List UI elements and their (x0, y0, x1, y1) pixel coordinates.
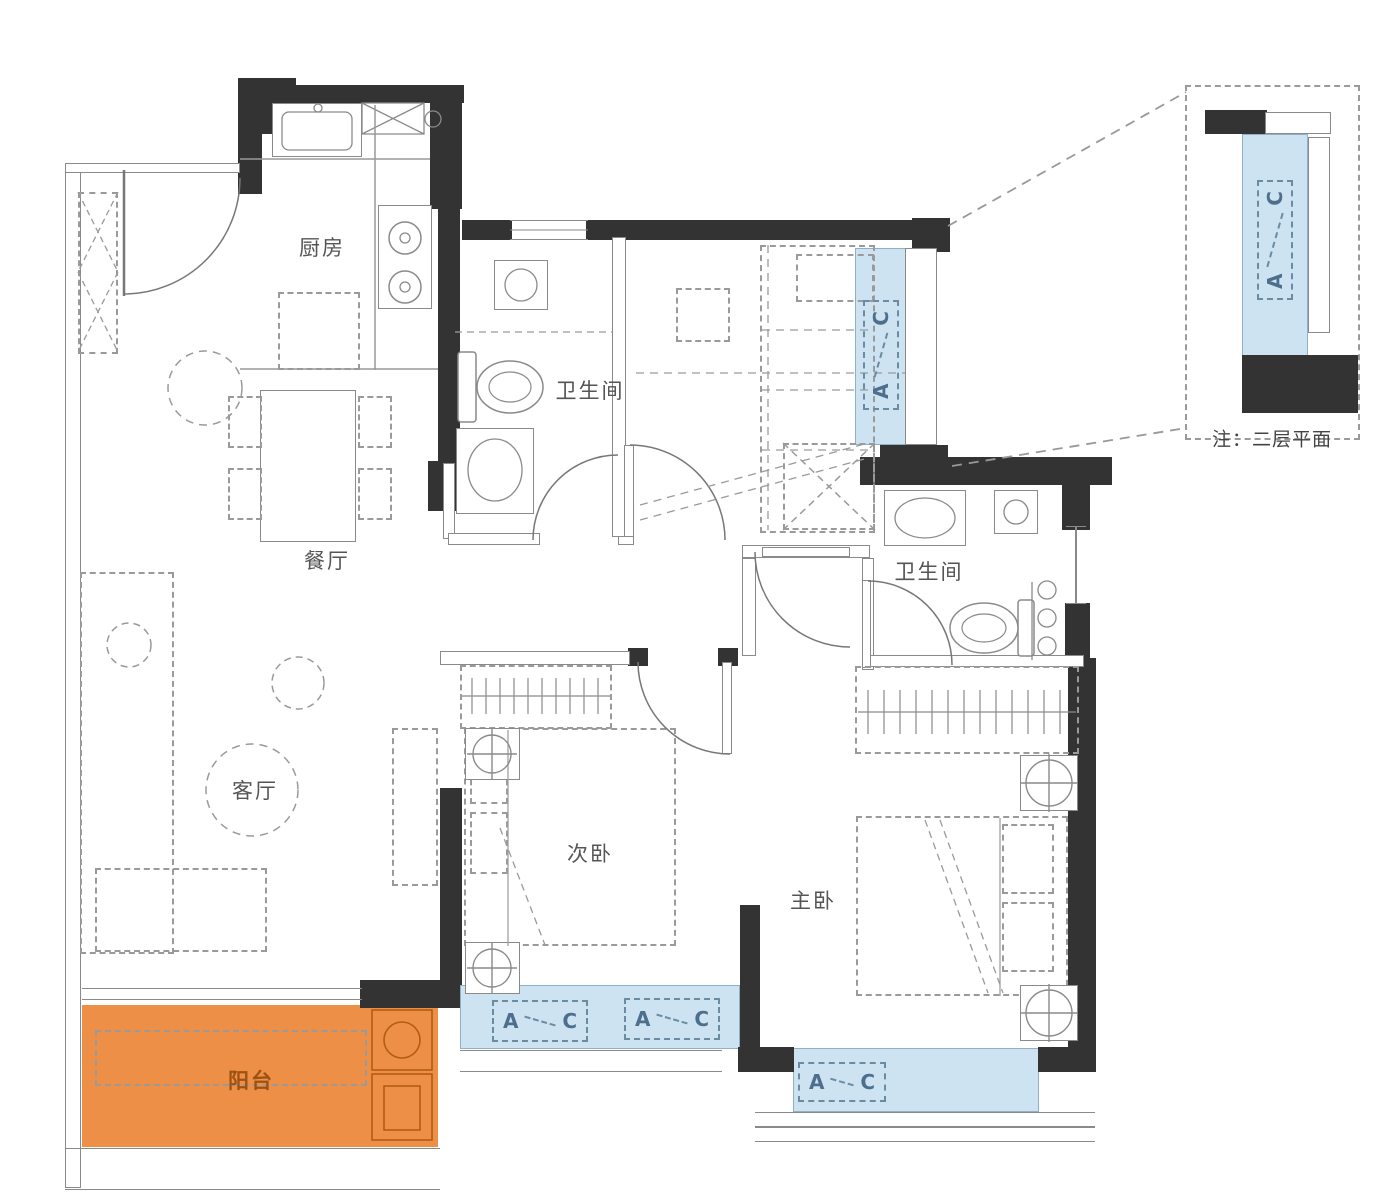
window-mark-box: A C (624, 998, 720, 1040)
window-mark-diagonal (1266, 212, 1283, 266)
blanket-line (925, 820, 1003, 993)
window-mark-a: A (809, 1070, 824, 1094)
window-mark-diagonal (657, 1014, 688, 1025)
fixture-dot (425, 111, 441, 127)
room-label-bath-top: 卫生间 (556, 375, 625, 405)
window-mark-a: A (635, 1007, 650, 1031)
window-mark-box-vertical: A C (863, 300, 899, 410)
window-mark-c: C (860, 1070, 875, 1094)
window-mark-box-inset: A C (1257, 180, 1293, 300)
toilet-icon (477, 361, 543, 413)
door-arc-second-bedroom (638, 662, 730, 754)
room-label-living: 客厅 (232, 775, 278, 805)
shaft-cross (78, 192, 118, 352)
window-mark-c: C (1263, 191, 1287, 206)
window-mark-box: A C (492, 1000, 588, 1042)
washer-drum-icon (505, 269, 537, 301)
void-cross (783, 443, 875, 530)
basin-icon (895, 498, 955, 538)
window-mark-c: C (869, 311, 893, 326)
window-mark-box: A C (798, 1062, 886, 1102)
door-arc-entry (124, 178, 240, 294)
door-arc-bath-master (868, 581, 952, 665)
blanket-line (500, 828, 545, 945)
ac-crosshair-icon (467, 729, 1078, 1042)
sink-basin-icon (282, 112, 352, 150)
balcony-washer-icon (372, 1010, 432, 1140)
hanger-rail-icon (462, 678, 610, 714)
plant-icon (272, 657, 324, 709)
plant-icon (168, 351, 242, 425)
stove-burner-icon (389, 222, 421, 254)
hanger-rail-icon (858, 690, 1076, 734)
window-mark-a: A (1263, 274, 1287, 289)
toilet-icon (950, 603, 1018, 653)
stove-burner-icon (389, 271, 421, 303)
floor-plan: A C A C A C A C A C 厨房 餐厅 卫生间 卫生间 客厅 次卧 … (0, 0, 1400, 1204)
toilet-tank-icon (458, 352, 476, 422)
stove-burner-icon (400, 282, 410, 292)
room-label-kitchen: 厨房 (299, 232, 345, 262)
basin-icon (468, 439, 522, 501)
room-label-master-bedroom: 主卧 (790, 885, 836, 915)
room-label-dining: 餐厅 (304, 545, 350, 575)
door-arc-bath-top (533, 455, 618, 540)
shower-knob-icon (1038, 581, 1056, 599)
window-mark-a: A (503, 1009, 518, 1033)
inset-note: 注：二层平面 (1212, 425, 1332, 452)
room-label-bath-master: 卫生间 (895, 556, 964, 586)
shower-knob-icon (1038, 637, 1056, 655)
room-label-second-bedroom: 次卧 (567, 838, 613, 868)
callout-line (948, 92, 1186, 226)
stove-burner-icon (400, 233, 410, 243)
window-mark-diagonal (831, 1078, 854, 1086)
door-arc-top-room (630, 445, 725, 540)
plant-icon (107, 623, 151, 667)
window-mark-diagonal (874, 332, 889, 377)
window-mark-diagonal (525, 1016, 556, 1027)
door-arc-master-bedroom (755, 552, 850, 647)
callout-line (952, 428, 1186, 466)
window-mark-c: C (562, 1009, 577, 1033)
window-mark-a: A (869, 384, 893, 399)
shower-knob-icon (1038, 609, 1056, 627)
room-label-balcony: 阳台 (228, 1065, 274, 1095)
faucet-icon (1004, 500, 1028, 524)
faucet-icon (314, 104, 322, 112)
window-mark-c: C (694, 1007, 709, 1031)
cabinet-cross (362, 103, 424, 134)
